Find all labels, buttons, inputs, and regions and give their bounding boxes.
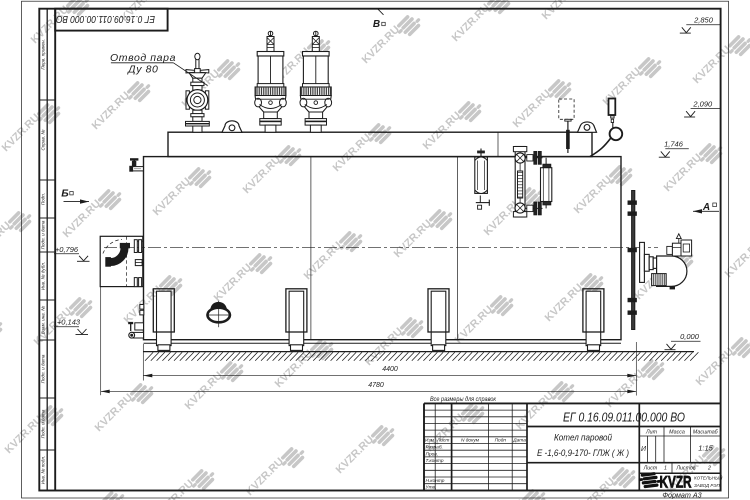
svg-text:KVZR.RU: KVZR.RU	[334, 434, 377, 477]
svg-text:KVZR.RU: KVZR.RU	[691, 44, 734, 87]
svg-text:Н.контр: Н.контр	[426, 478, 445, 484]
svg-text:Листов: Листов	[675, 466, 696, 472]
svg-text:ЕГ 0.16.09.011.00.000 ВО: ЕГ 0.16.09.011.00.000 ВО	[56, 13, 155, 24]
svg-text:KVZR.RU: KVZR.RU	[90, 90, 133, 133]
svg-text:2: 2	[707, 466, 711, 472]
svg-text:Утв.: Утв.	[426, 485, 437, 491]
svg-text:Изм: Изм	[425, 438, 435, 444]
svg-text:Подп. и дата: Подп. и дата	[41, 409, 46, 438]
svg-text:1,746: 1,746	[664, 140, 684, 149]
svg-text:KVZR.RU: KVZR.RU	[694, 346, 737, 389]
svg-text:KVZR.RU: KVZR.RU	[540, 0, 583, 22]
svg-text:Все размеры для справок: Все размеры для справок	[430, 396, 497, 403]
svg-text:ЕГ 0.16.09.011.00.000 ВО: ЕГ 0.16.09.011.00.000 ВО	[563, 409, 685, 424]
svg-text:Лист: Лист	[643, 466, 658, 472]
svg-text:Б: Б	[61, 188, 69, 200]
svg-text:KVZR.RU: KVZR.RU	[61, 198, 104, 241]
svg-text:Котел паровой: Котел паровой	[554, 433, 612, 443]
svg-text:KVZR.RU: KVZR.RU	[421, 110, 464, 153]
svg-text:Разраб.: Разраб.	[426, 445, 443, 451]
svg-text:KVZR.RU: KVZR.RU	[363, 326, 406, 369]
svg-text:KVZR.RU: KVZR.RU	[392, 218, 435, 261]
svg-text:KVZR.RU: KVZR.RU	[151, 176, 194, 219]
svg-text:Формат А3: Формат А3	[662, 491, 701, 500]
svg-text:KVZR.RU: KVZR.RU	[93, 392, 136, 435]
svg-text:1: 1	[664, 466, 667, 472]
svg-text:KVZR.RU: KVZR.RU	[575, 476, 618, 500]
svg-text:Взам. инв. №: Взам. инв. №	[41, 306, 46, 334]
svg-text:KVZR.RU: KVZR.RU	[331, 132, 374, 175]
svg-text:KVZR.RU: KVZR.RU	[723, 238, 750, 281]
svg-text:KVZR.RU: KVZR.RU	[154, 478, 197, 500]
svg-text:1:15: 1:15	[698, 444, 713, 453]
svg-text:Е -1,6-0,9-170- ГЛЖ ( Ж ): Е -1,6-0,9-170- ГЛЖ ( Ж )	[537, 448, 629, 458]
svg-text:KVZR.RU: KVZR.RU	[244, 456, 287, 499]
svg-text:КОТЕЛЬНЫЙ: КОТЕЛЬНЫЙ	[694, 474, 723, 481]
svg-text:Лит: Лит	[645, 429, 658, 435]
svg-text:KVZR.RU: KVZR.RU	[662, 152, 705, 195]
svg-text:KVZR.RU: KVZR.RU	[302, 240, 345, 283]
svg-text:И: И	[641, 446, 647, 453]
svg-text:4400: 4400	[382, 366, 398, 373]
svg-text:KVZR.RU: KVZR.RU	[543, 282, 586, 325]
svg-text:KVZR.RU: KVZR.RU	[212, 262, 255, 305]
svg-text:Инв. № подл.: Инв. № подл.	[41, 456, 46, 485]
svg-text:KVZR: KVZR	[660, 474, 692, 492]
svg-text:N докум: N докум	[461, 438, 480, 444]
svg-text:Справ. №: Справ. №	[41, 130, 46, 151]
svg-text:4780: 4780	[368, 382, 384, 389]
svg-text:KVZR.RU: KVZR.RU	[241, 154, 284, 197]
svg-text:Масса: Масса	[669, 429, 685, 435]
svg-text:+0,143: +0,143	[57, 318, 81, 327]
svg-text:Инв. № дубл.: Инв. № дубл.	[41, 262, 46, 290]
svg-text:Лист: Лист	[436, 438, 449, 444]
svg-text:Подп. и дата: Подп. и дата	[41, 354, 46, 383]
svg-text:KVZR.RU: KVZR.RU	[572, 174, 615, 217]
svg-text:Подп. и дата: Подп. и дата	[41, 220, 46, 249]
svg-text:Отвод пара: Отвод пара	[110, 52, 176, 64]
svg-text:KVZR.RU: KVZR.RU	[360, 24, 403, 67]
svg-text:Дата: Дата	[512, 438, 526, 444]
svg-text:В: В	[373, 19, 380, 30]
svg-text:Т.контр: Т.контр	[426, 458, 444, 464]
svg-text:2,090: 2,090	[692, 100, 713, 109]
svg-text:Перв. примен.: Перв. примен.	[41, 39, 46, 70]
svg-text:KVZR.RU: KVZR.RU	[601, 66, 644, 109]
svg-text:Масштаб: Масштаб	[693, 429, 719, 435]
svg-text:0,000: 0,000	[680, 332, 700, 341]
svg-text:KVZR.RU: KVZR.RU	[0, 112, 42, 155]
svg-text:ЗАВОД РЭП: ЗАВОД РЭП	[694, 483, 721, 488]
svg-text:Ду 80: Ду 80	[127, 64, 158, 76]
svg-text:Подп: Подп	[495, 438, 507, 444]
svg-text:Пров.: Пров.	[426, 451, 439, 457]
svg-text:Подп.: Подп.	[41, 193, 46, 205]
svg-text:+0,796: +0,796	[55, 245, 79, 254]
svg-text:KVZR.RU: KVZR.RU	[511, 88, 554, 131]
svg-text:2,850: 2,850	[693, 16, 714, 25]
